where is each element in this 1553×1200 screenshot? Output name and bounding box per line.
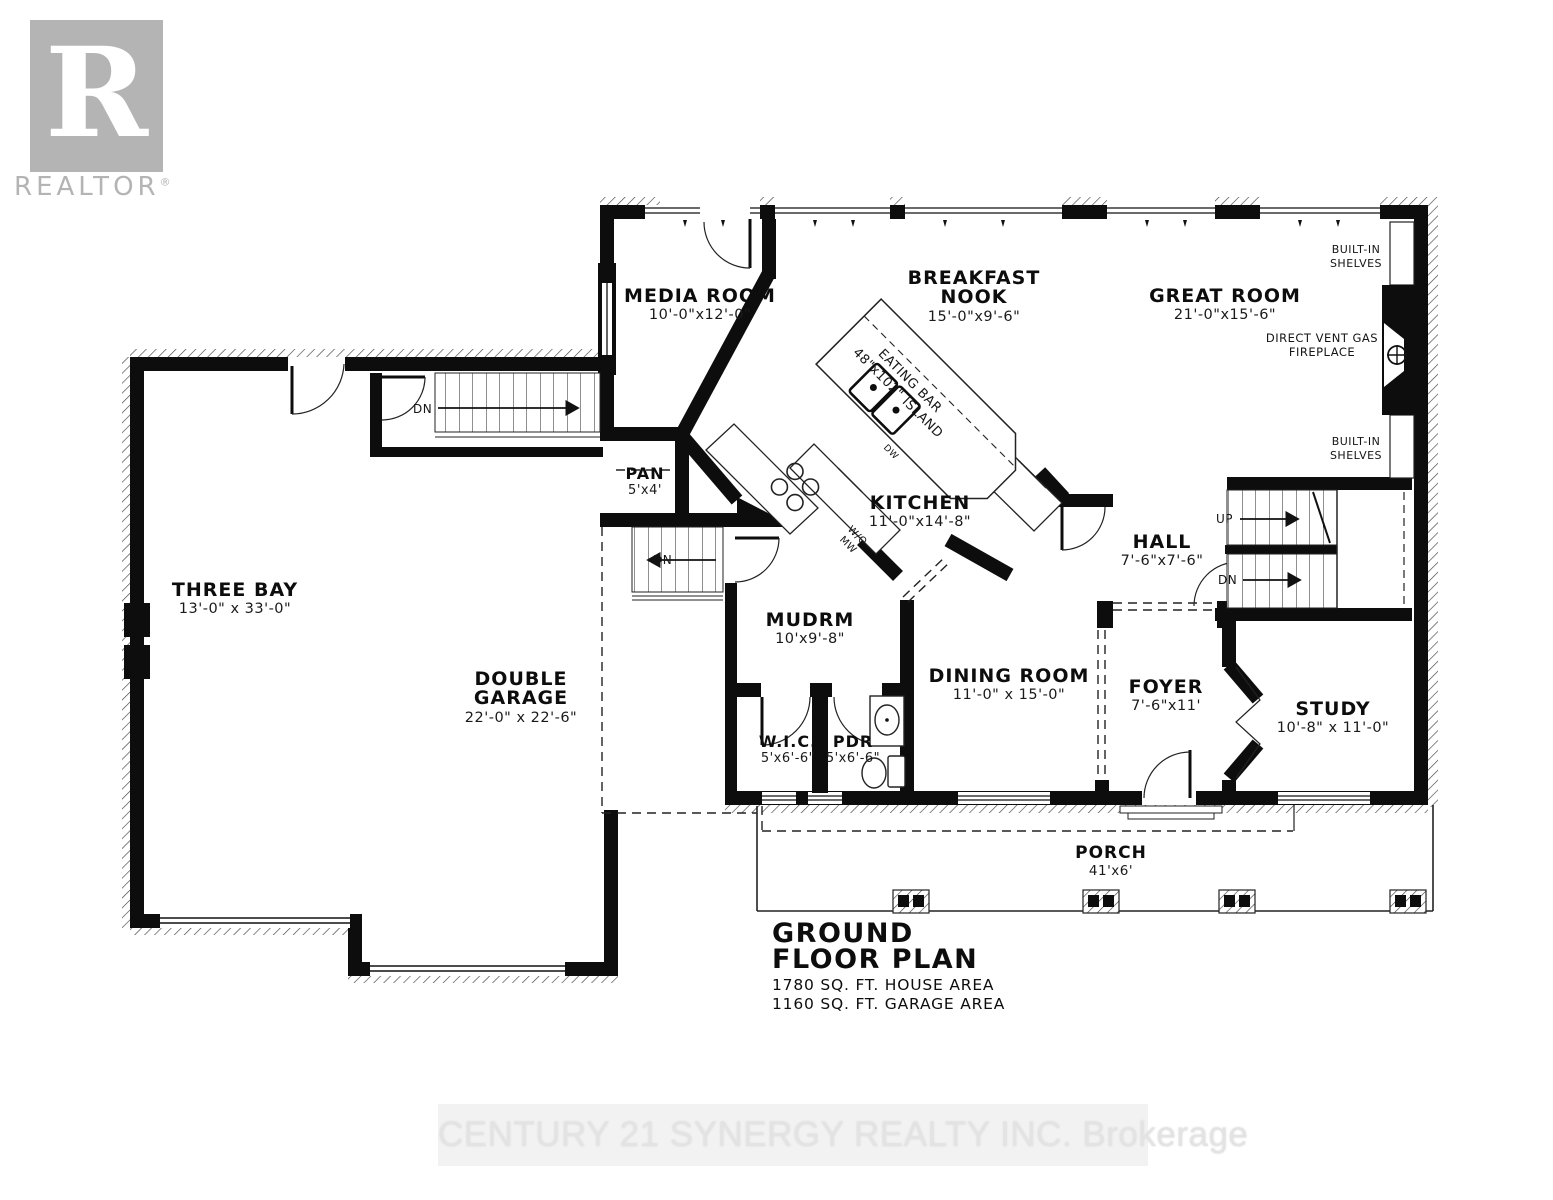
- realtor-wordmark: REALTOR®: [14, 172, 194, 202]
- title-block: GROUND FLOOR PLAN 1780 SQ. FT. HOUSE ARE…: [772, 921, 1005, 1013]
- room-label-study: STUDY 10'-8" x 11'-0": [1277, 700, 1389, 736]
- realtor-logo-letter: R: [30, 20, 163, 168]
- room-label-foyer: FOYER 7'-6"x11': [1129, 678, 1204, 714]
- note-built-in-shelves-bottom: BUILT-IN SHELVES: [1319, 435, 1393, 463]
- room-label-wic: W.I.C. 5'x6'-6": [759, 734, 817, 766]
- stair-label-dn-garage: DN: [413, 402, 432, 416]
- room-label-breakfast-nook: BREAKFAST NOOK 15'-0"x9'-6": [894, 269, 1054, 325]
- room-label-hall: HALL 7'-6"x7'-6": [1121, 533, 1204, 569]
- room-label-pan: PAN 5'x4': [625, 466, 664, 498]
- room-label-great-room: GREAT ROOM 21'-0"x15'-6": [1149, 287, 1301, 323]
- house-area-text: 1780 SQ. FT. HOUSE AREA: [772, 976, 1005, 994]
- room-label-double-garage: DOUBLE GARAGE 22'-0" x 22'-6": [461, 670, 581, 726]
- stair-label-up: UP: [1216, 512, 1233, 526]
- room-label-three-bay: THREE BAY 13'-0" x 33'-0": [172, 581, 298, 617]
- room-label-pdr: PDR 5'x6'-6": [826, 734, 880, 766]
- note-fireplace: DIRECT VENT GAS FIREPLACE: [1256, 331, 1388, 360]
- realtor-logo-icon: R: [30, 20, 163, 172]
- room-label-mudrm: MUDRM 10'x9'-8": [766, 611, 855, 647]
- room-label-media-room: MEDIA ROOM 10'-0"x12'-0": [624, 287, 776, 323]
- stair-label-dn-basement: DN: [653, 553, 672, 567]
- room-label-porch: PORCH 41'x6': [1075, 845, 1147, 879]
- porch-columns: [893, 890, 1426, 913]
- note-built-in-shelves-top: BUILT-IN SHELVES: [1319, 243, 1393, 271]
- stairs-basement: [632, 527, 723, 600]
- garage-area-text: 1160 SQ. FT. GARAGE AREA: [772, 995, 1005, 1013]
- registered-mark: ®: [160, 175, 171, 188]
- plan-title-line2: FLOOR PLAN: [772, 947, 1005, 973]
- stair-label-dn-main: DN: [1218, 573, 1237, 587]
- floorplan-canvas: MEDIA ROOM 10'-0"x12'-0" BREAKFAST NOOK …: [0, 0, 1553, 1200]
- plan-title-line1: GROUND: [772, 921, 1005, 947]
- brokerage-watermark: CENTURY 21 SYNERGY REALTY INC. Brokerage: [438, 1104, 1148, 1166]
- room-label-kitchen: KITCHEN 11'-0"x14'-8": [869, 494, 971, 530]
- room-label-dining-room: DINING ROOM 11'-0" x 15'-0": [929, 667, 1090, 703]
- stairs-garage-landing: [435, 373, 600, 437]
